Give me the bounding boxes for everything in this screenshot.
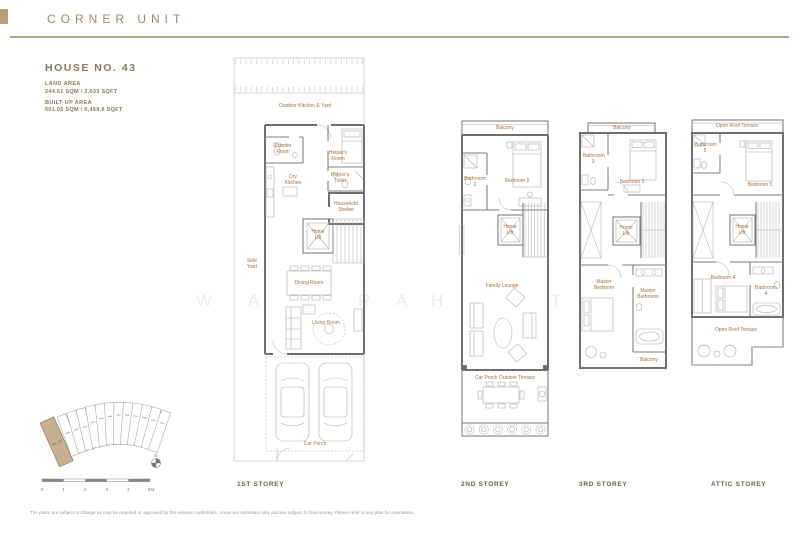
room-label-bedroom-5: Bedroom 5 <box>748 182 772 188</box>
room-label-bedroom-4: Bedroom 4 <box>711 275 735 281</box>
room-label-bathroom-3: Bathroom 3 <box>583 153 603 165</box>
watermark-letter: H <box>431 291 443 311</box>
room-label-dining-room: Dining Room <box>295 280 324 286</box>
room-label-bedroom-3: Bedroom 3 <box>620 179 644 185</box>
room-label-balcony: Balcony <box>496 125 514 131</box>
floorplan-1st-storey: Outdoor Kitchen & Yard Powder Room Helpe… <box>233 57 365 478</box>
room-label-car-porch: Car Porch <box>304 441 327 447</box>
scale-label-0: 0 <box>41 487 44 492</box>
caption-1st-storey: 1ST STOREY <box>237 481 284 488</box>
room-label-family-lounge: Family Lounge <box>486 283 519 289</box>
brochure-page: CORNER UNIT HOUSE NO. 43 LAND AREA 244.6… <box>0 0 800 533</box>
built-up-label: BUILT-UP AREA <box>45 100 137 106</box>
room-label-bathroom-4: Bathroom 4 <box>755 285 777 297</box>
room-label-master-bedroom: Master Bedroom <box>591 279 617 291</box>
caption-attic-storey: ATTIC STOREY <box>711 481 766 488</box>
house-number: HOUSE NO. 43 <box>45 62 137 74</box>
room-label-household-shelter: Household Shelter <box>332 201 360 213</box>
built-up-value: 601.05 SQM / 6,469.6 SQFT <box>45 107 137 113</box>
north-arrow-icon: N <box>152 453 161 468</box>
land-area-label: LAND AREA <box>45 81 137 87</box>
room-label-helpers-toilet: Helper's Toilet <box>328 172 352 184</box>
room-label-open-roof-terrace-rear: Open Roof Terrace <box>715 327 757 333</box>
caption-2nd-storey: 2ND STOREY <box>461 481 509 488</box>
room-label-bathroom-5: Bathroom 5 <box>695 142 715 154</box>
accent-corner-tab <box>0 9 8 24</box>
scale-label-2: 2 <box>84 487 87 492</box>
room-label-bedroom-2: Bedroom 2 <box>505 178 529 184</box>
scale-bar: 0 1 2 3 4 5M <box>38 475 178 499</box>
scale-label-5m: 5M <box>148 487 155 492</box>
room-label-helpers-room: Helper's Room <box>326 150 350 162</box>
header-divider <box>10 36 789 38</box>
room-label-powder-room: Powder Room <box>270 143 296 155</box>
floorplan-2nd-storey-drawing <box>455 115 555 445</box>
room-label-home-lift: Home Lift <box>502 224 518 236</box>
room-label-home-lift: Home Lift <box>310 229 326 241</box>
scale-label-1: 1 <box>62 487 65 492</box>
caption-3rd-storey: 3RD STOREY <box>579 481 627 488</box>
watermark-letter: A <box>396 291 407 311</box>
disclaimer-text: The plans are subject to change as may b… <box>30 510 414 515</box>
floorplan-3rd-storey: Balcony Bathroom 3 Bedroom 3 Home Lift M… <box>578 115 668 373</box>
north-label: N <box>154 453 157 458</box>
room-label-master-bathroom: Master Bathroom <box>636 288 660 300</box>
room-label-home-lift: Home Lift <box>618 225 634 237</box>
room-label-living-room: Living Room <box>312 320 340 326</box>
room-label-bathroom-2: Bathroom 2 <box>464 176 486 188</box>
watermark-letter: W <box>196 291 212 311</box>
room-label-outdoor-kitchen-yard: Outdoor Kitchen & Yard <box>279 103 331 109</box>
room-label-balcony: Balcony <box>613 125 631 131</box>
room-label-home-lift: Home Lift <box>734 224 750 236</box>
land-area-value: 244.61 SQM / 2,633 SQFT <box>45 89 137 95</box>
scale-label-4: 4 <box>127 487 130 492</box>
room-label-dry-kitchen: Dry Kitchen <box>282 174 304 186</box>
room-label-open-roof-terrace: Open Roof Terrace <box>716 123 758 129</box>
room-label-balcony-rear: Balcony <box>640 357 658 363</box>
key-plan-lots: No. 43 <box>40 402 171 467</box>
floorplan-2nd-storey: Balcony Bathroom 2 Bedroom 2 Home Lift F… <box>455 115 555 445</box>
house-info: HOUSE NO. 43 LAND AREA 244.61 SQM / 2,63… <box>45 62 137 113</box>
page-title: CORNER UNIT <box>47 12 185 26</box>
room-label-car-porch-outdoor-terrace: Car Porch Outdoor Terrace <box>475 375 535 381</box>
key-plan: No. 43 N <box>38 393 178 471</box>
floorplan-attic-storey: Open Roof Terrace Bathroom 5 Bedroom 5 H… <box>690 115 785 373</box>
room-label-side-yard: Side Yard <box>245 258 259 270</box>
scale-label-3: 3 <box>106 487 109 492</box>
